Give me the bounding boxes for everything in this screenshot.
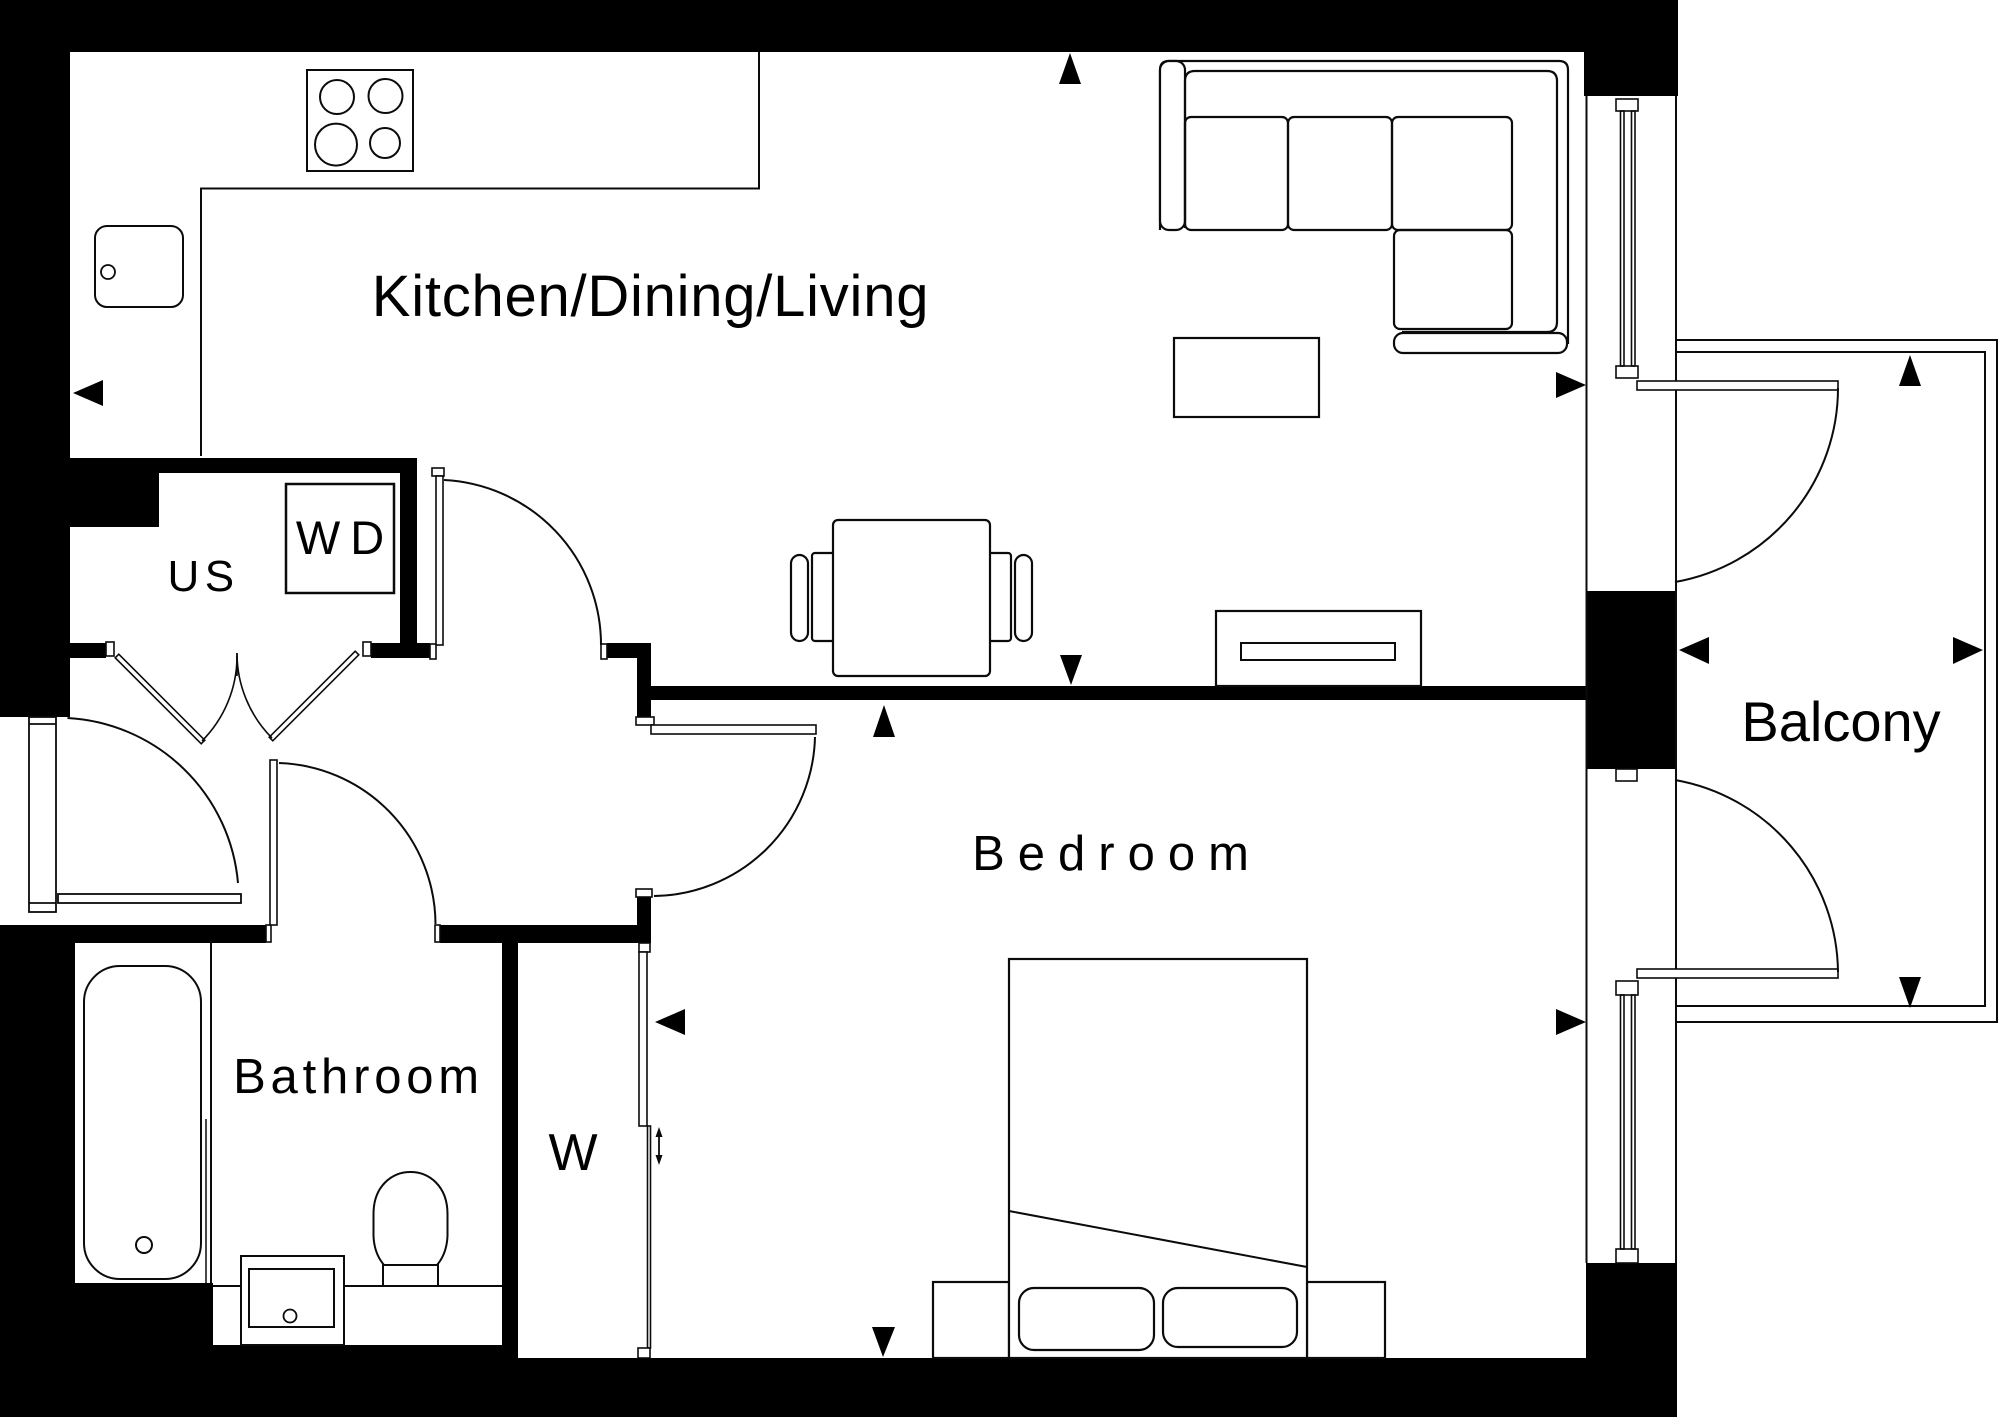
svg-text:US: US bbox=[167, 552, 239, 601]
svg-text:Balcony: Balcony bbox=[1741, 690, 1940, 753]
svg-text:Kitchen/Dining/Living: Kitchen/Dining/Living bbox=[372, 264, 929, 329]
svg-text:Bathroom: Bathroom bbox=[233, 1050, 484, 1104]
svg-text:WD: WD bbox=[296, 511, 394, 564]
svg-text:Bedroom: Bedroom bbox=[972, 827, 1262, 881]
svg-text:W: W bbox=[548, 1124, 597, 1182]
